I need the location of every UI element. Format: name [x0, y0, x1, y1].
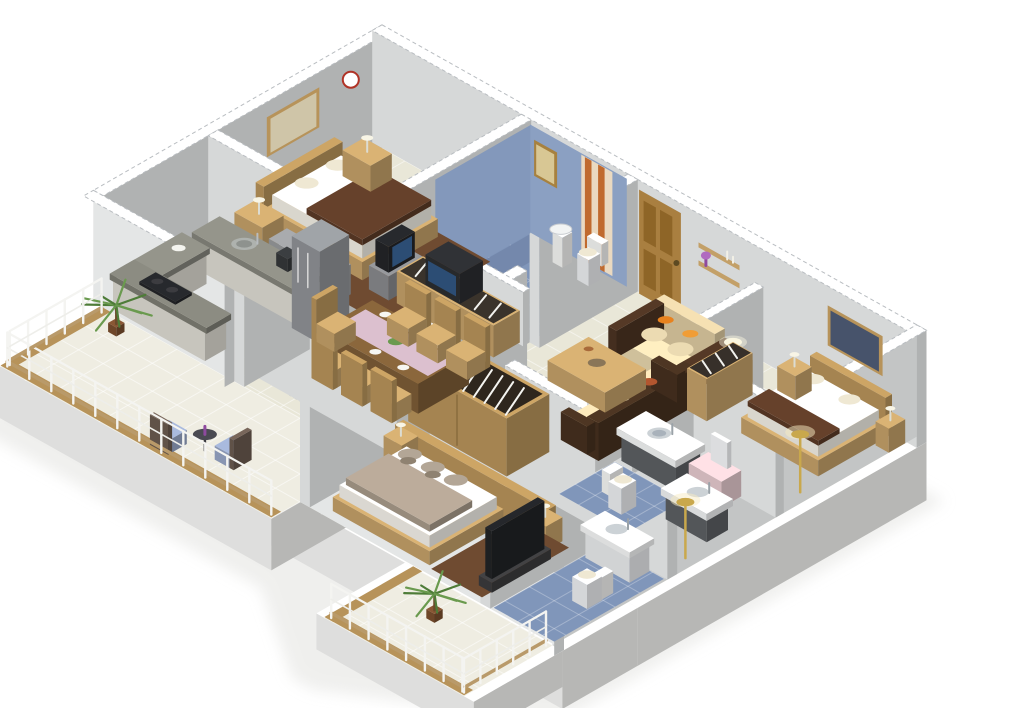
bedroom1-wall-clock — [343, 72, 359, 88]
kitchen-towel — [172, 245, 186, 252]
apartment-3d-floor-plan — [0, 0, 1024, 708]
bedroom1-pillow-2 — [295, 177, 319, 188]
kitchen-burner-2 — [166, 287, 178, 293]
bathroom3-basin — [606, 524, 628, 534]
entrance-door-panel-3 — [644, 249, 656, 292]
entrance-door-knob — [673, 260, 679, 266]
bedroom2-lamp-2-shade — [885, 406, 895, 411]
vanity1-basin-inner — [652, 430, 666, 437]
entrance-door-panel-1 — [644, 201, 656, 248]
bathroom1-sink-basin — [550, 224, 572, 234]
dining-plate-6 — [397, 365, 409, 371]
entrance-door-panel-4 — [660, 258, 672, 301]
loveseat-pillow-orange-1 — [658, 316, 674, 324]
floor-plan-canvas — [0, 0, 1024, 708]
loveseat-pillow-orange-2 — [682, 330, 698, 338]
vanity-floor-lamp-shade — [676, 498, 694, 506]
scene-root — [0, 25, 944, 708]
bedroom2-floor-lamp-shade — [791, 430, 809, 438]
shelf-flowers — [701, 252, 711, 260]
bathroom1-toilet-seat — [579, 248, 597, 256]
bedroom2-pillow-2 — [838, 394, 860, 404]
master-lamp-west-shade — [396, 423, 406, 428]
bedroom2-lamp-1-shade — [790, 352, 800, 357]
bedroom1-lamp-2-shade — [253, 197, 265, 203]
kitchen-sink-inner — [236, 240, 252, 248]
entrance-door-panel-2 — [660, 210, 672, 257]
kitchen-burner-1 — [151, 279, 163, 285]
master-throw-pillow-1 — [400, 457, 416, 465]
coffee-table-decor — [584, 347, 594, 352]
master-pillow-3 — [444, 474, 468, 485]
loveseat-cushion-1 — [641, 328, 667, 342]
coffee-table-bowl — [588, 359, 606, 367]
bedroom1-lamp-1-shade — [361, 135, 373, 141]
dining-plate-5 — [369, 349, 381, 355]
bathroom3-toilet-seat — [578, 570, 596, 578]
loveseat-cushion-2 — [668, 342, 694, 356]
master-throw-pillow-2 — [425, 471, 441, 479]
bathroom2-toilet-seat — [614, 475, 632, 483]
